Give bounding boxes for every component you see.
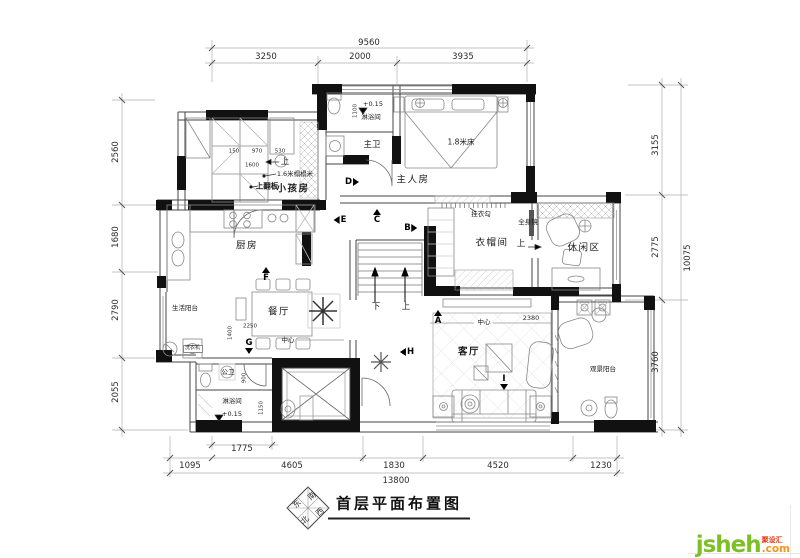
room-label-kids-room: 小孩房	[276, 184, 309, 194]
dim-bottom-total: 13800	[382, 477, 409, 486]
room-label-living: 客厅	[458, 347, 480, 357]
dim-inner-1400: 1400	[228, 326, 234, 340]
dim-bottom-5: 1230	[590, 462, 612, 471]
dim-inner-150: 150	[229, 149, 240, 155]
bed-label: 1.8米床	[448, 138, 475, 146]
view-marker-e: E	[334, 215, 347, 225]
room-label-kitchen: 厨房	[236, 241, 258, 251]
view-marker-c: C	[373, 209, 381, 225]
room-label-shower-top: 淋浴间	[361, 114, 381, 121]
center-label-dining: 中心	[282, 337, 295, 344]
dim-bottom-0: 1775	[231, 445, 253, 454]
dim-bottom-3: 1830	[383, 462, 405, 471]
closets	[300, 122, 614, 290]
dim-inner-2250: 2250	[243, 324, 257, 330]
dim-inner-2380: 2380	[523, 315, 540, 322]
dimension-ticks	[119, 45, 684, 476]
view-marker-d: D	[345, 177, 359, 187]
view-marker-i: I	[500, 374, 508, 390]
watermark-logo[interactable]: jsheh 聚设汇 .com	[696, 536, 790, 554]
watermark-name: jsheh	[696, 536, 761, 554]
room-label-life-balcony: 生活阳台	[172, 305, 198, 312]
dim-inner-970: 970	[252, 149, 263, 155]
level-mark-top: +0.15	[363, 101, 383, 108]
mirror-label: 全身镜	[518, 219, 538, 226]
stairs-up-label: 上	[402, 303, 411, 312]
dim-inner-1600: 1600	[245, 163, 259, 169]
dim-inner-530: 530	[275, 149, 286, 155]
dim-bottom-1: 1095	[179, 462, 201, 471]
view-marker-h: H	[400, 347, 414, 357]
level-mark-bottom: +0.15	[222, 411, 242, 418]
staircase	[358, 243, 422, 296]
floor-plan-page: 淋浴间 +0.15 主卫 主人房 1.8米床 小孩房 1.6米榻榻米 上翻板 上…	[0, 0, 800, 558]
dim-top-2: 2000	[349, 53, 371, 62]
dim-inner-1150: 1150	[259, 401, 265, 415]
room-label-view-balcony: 观景阳台	[590, 366, 616, 373]
elevator-cabin	[282, 368, 350, 420]
dim-bottom-4: 4520	[487, 462, 509, 471]
room-label-master-bath: 主卫	[363, 141, 380, 150]
view-marker-a: A	[434, 310, 442, 326]
room-label-master-bedroom: 主人房	[396, 175, 429, 185]
view-marker-g: G	[245, 338, 253, 354]
dim-left-1: 2560	[112, 141, 121, 163]
view-marker-b: B	[404, 223, 417, 233]
view-marker-f: F	[262, 267, 270, 283]
dim-bottom-2: 4605	[281, 462, 303, 471]
dim-right-2: 2775	[652, 236, 661, 258]
up-label-kids: 上	[281, 158, 290, 167]
up-label-leisure: 上	[517, 240, 526, 249]
dim-left-3: 2790	[112, 299, 121, 321]
watermark-tld: .com	[762, 544, 790, 555]
washer-label: 洗衣机	[182, 345, 202, 353]
dim-top-3: 3935	[452, 53, 474, 62]
plan-title: 首层平面布置图	[328, 493, 470, 520]
dim-right-total: 10075	[684, 244, 693, 271]
flip-board-label: 上翻板	[256, 182, 279, 190]
window-lines	[163, 86, 651, 430]
dim-left-4: 2055	[112, 381, 121, 403]
center-label-living: 中心	[478, 319, 491, 326]
dim-inner-1100: 1100	[353, 104, 359, 118]
dim-inner-900: 900	[242, 373, 248, 384]
dim-left-2: 1680	[112, 226, 121, 248]
stairs-down-label: 下	[372, 303, 381, 312]
dim-top-1: 3250	[255, 53, 277, 62]
floor-plan-drawing	[0, 0, 800, 558]
page-divider-vertical	[790, 505, 791, 558]
room-label-dining: 餐厅	[268, 307, 290, 317]
room-label-shower-bottom: 淋浴间	[222, 398, 242, 405]
room-label-cloakroom: 衣帽间	[475, 238, 508, 248]
dim-top-total: 9560	[358, 39, 380, 48]
room-label-leisure: 休闲区	[567, 243, 600, 253]
tatami-label: 1.6米榻榻米	[277, 171, 313, 178]
dim-right-1: 3155	[652, 134, 661, 156]
hook-label: 挂衣勾	[471, 211, 491, 218]
room-label-public-bath: 公卫	[222, 369, 235, 376]
dim-right-3: 3760	[652, 351, 661, 373]
